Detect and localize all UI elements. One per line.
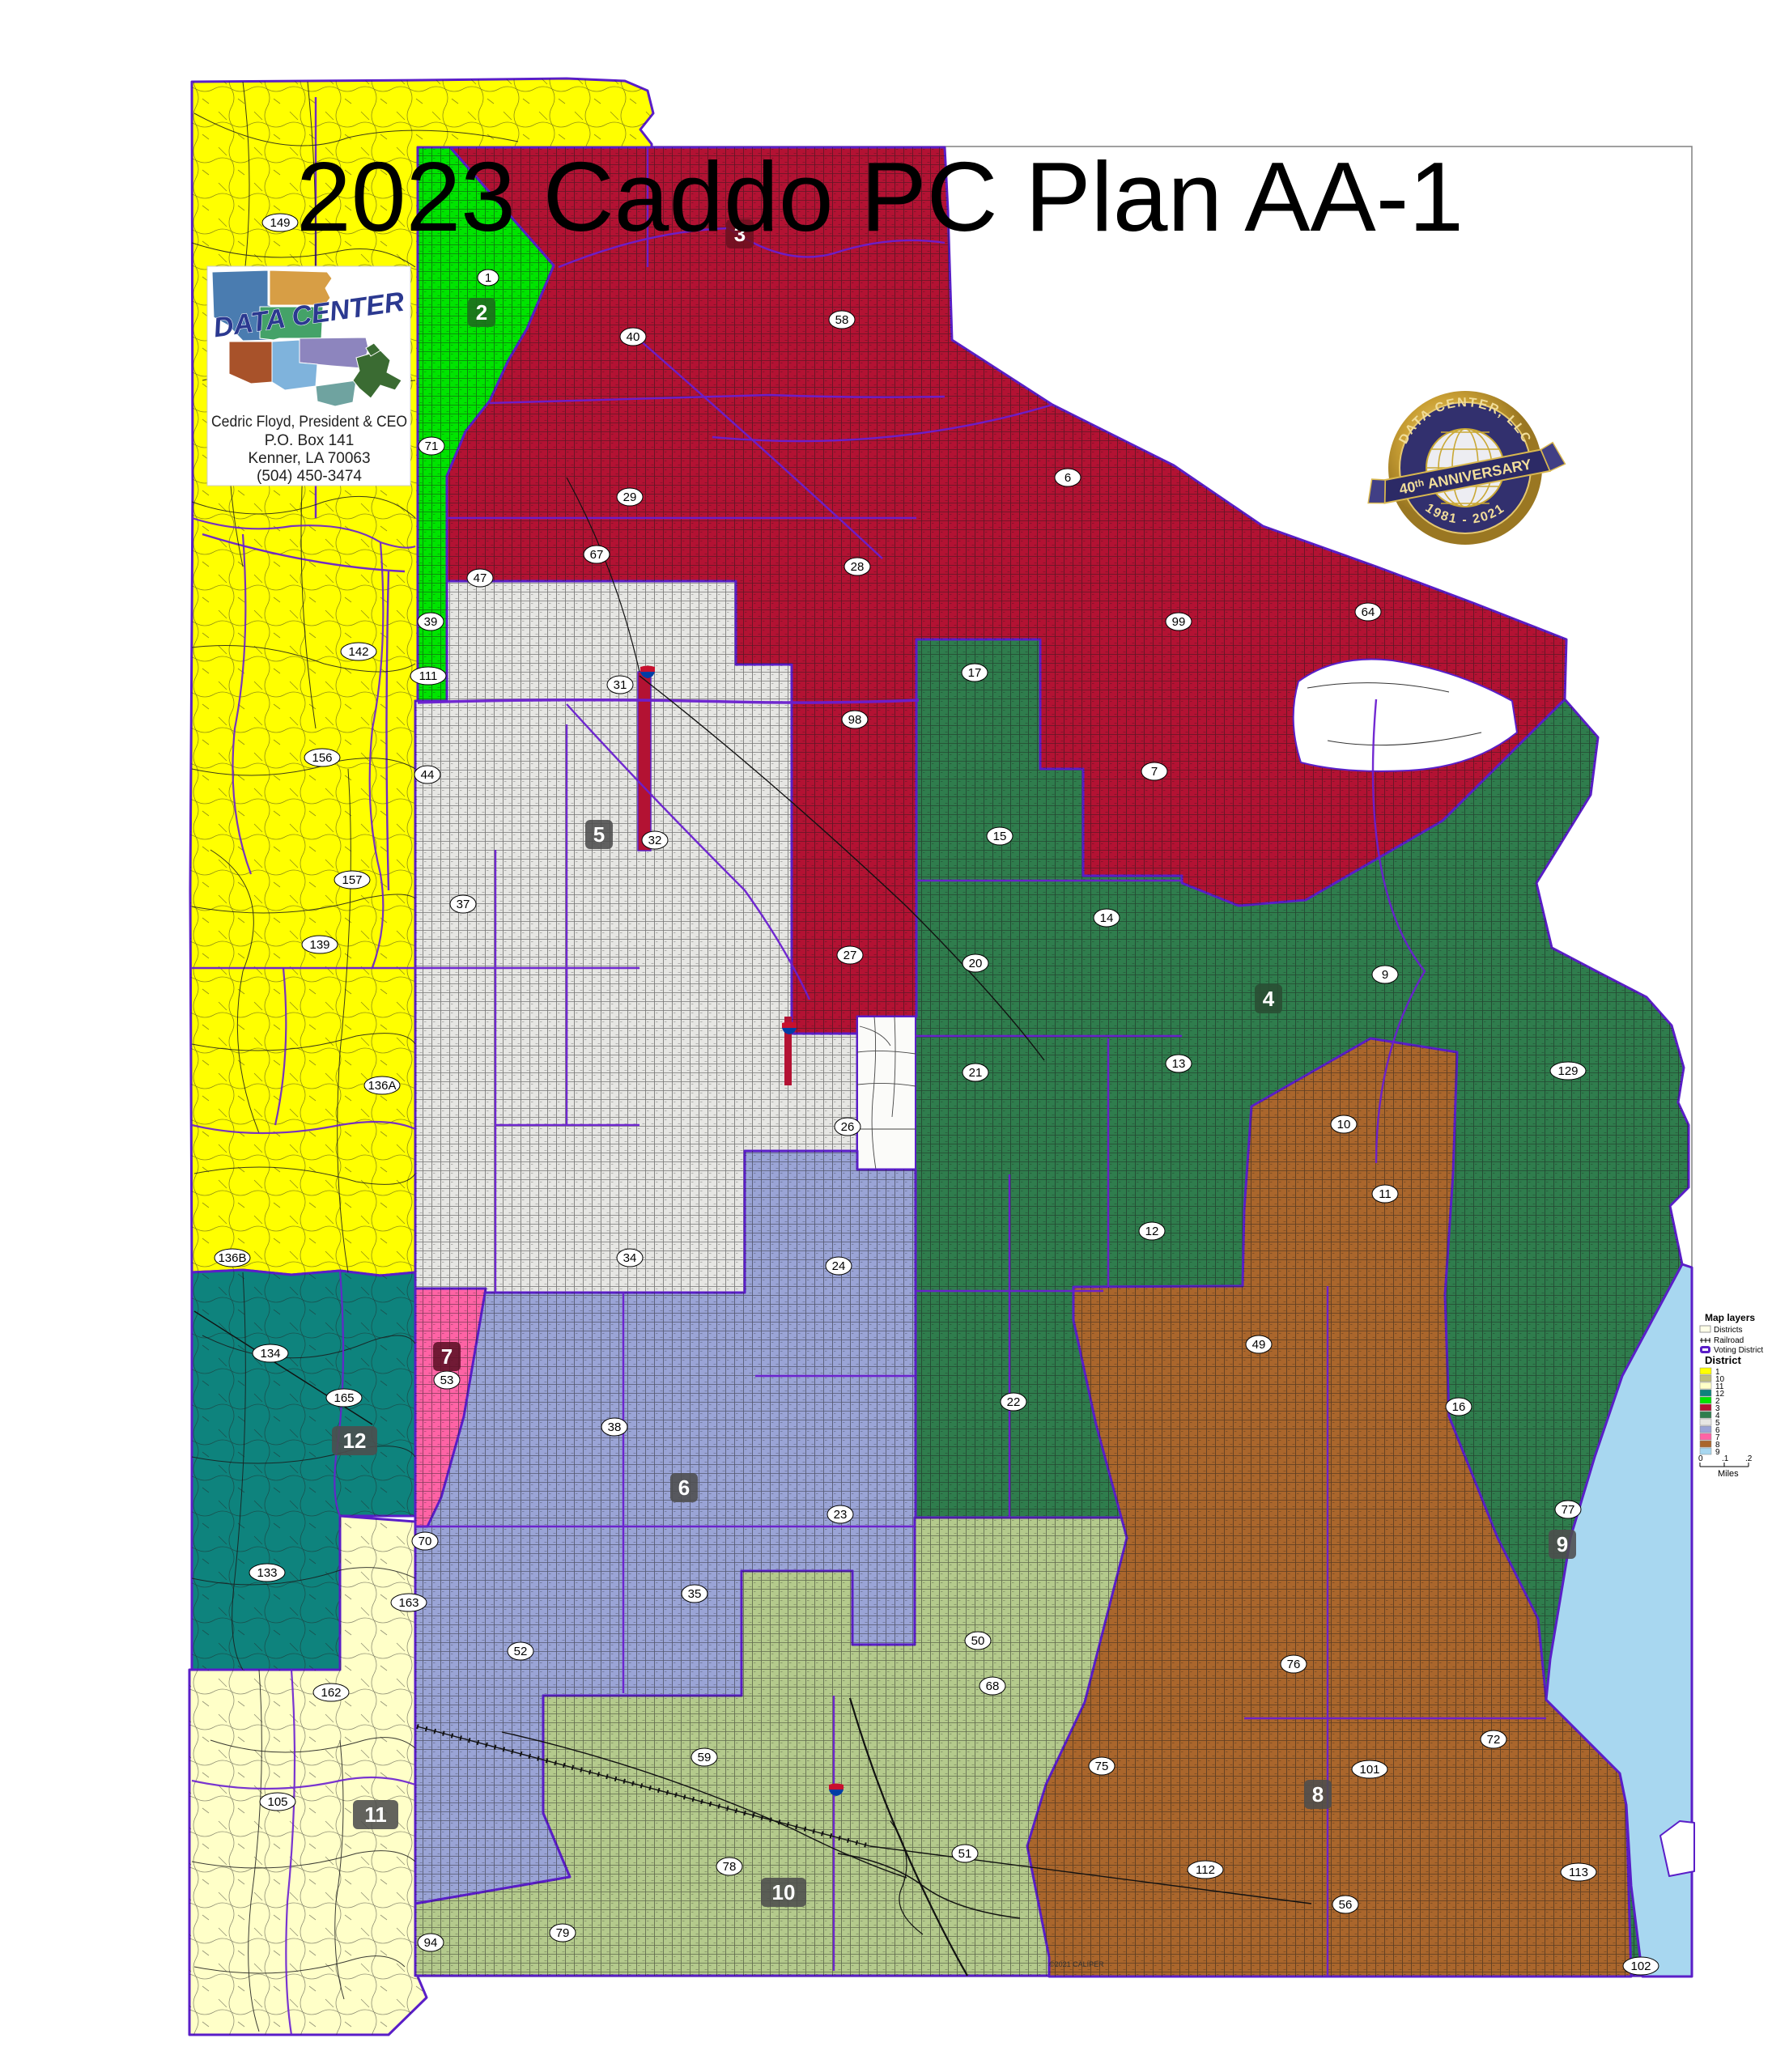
svg-text:64: 64 xyxy=(1362,605,1375,619)
svg-text:99: 99 xyxy=(1172,615,1186,629)
svg-text:16: 16 xyxy=(1452,1400,1466,1414)
svg-text:24: 24 xyxy=(832,1259,846,1273)
svg-text:6: 6 xyxy=(1064,471,1071,485)
svg-text:34: 34 xyxy=(623,1251,637,1265)
svg-text:40: 40 xyxy=(627,330,640,344)
svg-text:50: 50 xyxy=(971,1634,985,1648)
svg-text:52: 52 xyxy=(514,1645,528,1658)
svg-text:113: 113 xyxy=(1569,1866,1588,1879)
svg-text:157: 157 xyxy=(342,873,362,887)
svg-text:Map layers: Map layers xyxy=(1705,1312,1755,1323)
svg-text:79: 79 xyxy=(556,1926,570,1940)
svg-text:68: 68 xyxy=(986,1679,1000,1693)
svg-text:44: 44 xyxy=(421,768,435,782)
svg-text:56: 56 xyxy=(1339,1898,1353,1912)
svg-text:134: 134 xyxy=(260,1347,280,1361)
svg-text:77: 77 xyxy=(1562,1503,1575,1517)
svg-text:21: 21 xyxy=(969,1066,983,1080)
svg-text:38: 38 xyxy=(608,1420,622,1434)
svg-text:102: 102 xyxy=(1630,1959,1651,1973)
svg-text:71: 71 xyxy=(425,439,439,453)
svg-text:17: 17 xyxy=(968,666,982,680)
svg-text:29: 29 xyxy=(623,490,637,504)
svg-text:11: 11 xyxy=(364,1802,387,1827)
svg-text:53: 53 xyxy=(440,1374,454,1387)
svg-text:9: 9 xyxy=(1715,1448,1720,1457)
svg-text:111: 111 xyxy=(419,669,438,683)
svg-text:149: 149 xyxy=(270,216,290,230)
svg-text:10: 10 xyxy=(772,1880,796,1904)
svg-text:22: 22 xyxy=(1007,1395,1021,1409)
svg-text:Cedric Floyd, President & CEO: Cedric Floyd, President & CEO xyxy=(211,414,407,431)
svg-text:8: 8 xyxy=(1312,1782,1324,1807)
svg-text:District: District xyxy=(1705,1354,1741,1366)
svg-text:75: 75 xyxy=(1095,1760,1109,1773)
svg-text:37: 37 xyxy=(457,898,470,911)
svg-text:32: 32 xyxy=(648,834,662,847)
svg-text:26: 26 xyxy=(841,1120,855,1134)
svg-text:.2: .2 xyxy=(1745,1454,1753,1463)
svg-text:6: 6 xyxy=(678,1475,690,1500)
svg-text:98: 98 xyxy=(848,713,862,727)
svg-text:Districts: Districts xyxy=(1714,1326,1743,1335)
svg-text:28: 28 xyxy=(851,560,865,574)
svg-text:0: 0 xyxy=(1698,1454,1703,1463)
svg-text:101: 101 xyxy=(1359,1763,1379,1777)
svg-text:163: 163 xyxy=(398,1596,419,1610)
svg-text:133: 133 xyxy=(257,1566,277,1580)
svg-text:2023 Caddo PC Plan AA-1: 2023 Caddo PC Plan AA-1 xyxy=(296,142,1464,252)
svg-text:10: 10 xyxy=(1337,1118,1351,1132)
svg-text:51: 51 xyxy=(958,1847,972,1861)
svg-text:9: 9 xyxy=(1382,968,1388,982)
svg-text:14: 14 xyxy=(1100,911,1114,925)
svg-text:20: 20 xyxy=(969,957,983,970)
svg-text:76: 76 xyxy=(1287,1658,1301,1671)
svg-text:2: 2 xyxy=(476,300,487,325)
svg-text:7: 7 xyxy=(441,1344,453,1369)
svg-text:39: 39 xyxy=(424,615,438,629)
svg-text:Railroad: Railroad xyxy=(1714,1336,1744,1345)
svg-text:Kenner, LA 70063: Kenner, LA 70063 xyxy=(248,450,370,467)
svg-text:12: 12 xyxy=(343,1429,367,1453)
svg-text:5: 5 xyxy=(593,822,605,847)
svg-text:78: 78 xyxy=(723,1860,737,1874)
svg-text:7: 7 xyxy=(1151,765,1158,779)
svg-text:72: 72 xyxy=(1487,1733,1501,1747)
svg-text:4: 4 xyxy=(1263,987,1275,1011)
svg-text:.1: .1 xyxy=(1722,1454,1729,1463)
svg-text:23: 23 xyxy=(834,1508,848,1522)
svg-text:15: 15 xyxy=(993,830,1007,843)
svg-text:49: 49 xyxy=(1252,1338,1266,1352)
svg-text:59: 59 xyxy=(698,1751,712,1764)
svg-text:58: 58 xyxy=(835,313,849,327)
svg-text:13: 13 xyxy=(1172,1057,1186,1071)
svg-text:156: 156 xyxy=(312,751,332,765)
svg-text:11: 11 xyxy=(1379,1187,1392,1201)
svg-text:136A: 136A xyxy=(368,1079,396,1093)
svg-text:67: 67 xyxy=(590,548,604,562)
svg-text:P.O. Box 141: P.O. Box 141 xyxy=(265,432,355,449)
svg-text:1: 1 xyxy=(485,271,491,285)
svg-text:112: 112 xyxy=(1196,1863,1215,1877)
svg-text:70: 70 xyxy=(419,1535,432,1548)
svg-text:12: 12 xyxy=(1145,1225,1159,1238)
svg-text:162: 162 xyxy=(321,1686,341,1700)
svg-text:142: 142 xyxy=(348,645,368,659)
svg-text:105: 105 xyxy=(267,1795,287,1809)
svg-text:9: 9 xyxy=(1557,1532,1568,1556)
svg-text:35: 35 xyxy=(688,1587,702,1601)
svg-text:(504) 450-3474: (504) 450-3474 xyxy=(257,468,362,485)
svg-text:139: 139 xyxy=(309,938,329,952)
svg-text:165: 165 xyxy=(334,1391,354,1405)
svg-text:94: 94 xyxy=(424,1936,438,1950)
svg-text:©2021 CALIPER: ©2021 CALIPER xyxy=(1049,1960,1104,1968)
svg-text:27: 27 xyxy=(844,949,857,962)
svg-text:136B: 136B xyxy=(218,1251,246,1265)
svg-text:129: 129 xyxy=(1557,1064,1578,1078)
svg-text:Miles: Miles xyxy=(1718,1469,1739,1479)
svg-text:47: 47 xyxy=(474,571,487,585)
svg-text:31: 31 xyxy=(614,678,627,692)
